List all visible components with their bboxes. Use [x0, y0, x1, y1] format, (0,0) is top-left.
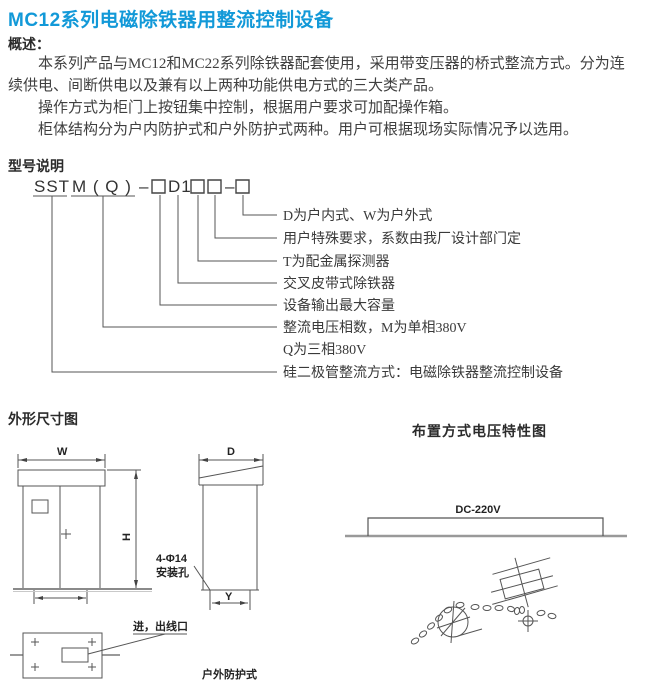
- model-code-box: [191, 180, 204, 193]
- material-pieces: [410, 602, 556, 645]
- model-label: T为配金属探测器: [283, 254, 390, 270]
- model-label: 设备输出最大容量: [283, 297, 395, 314]
- voltage-figure-heading: 布置方式电压特性图: [412, 421, 547, 441]
- model-code-box: [152, 180, 165, 193]
- model-code-diagram: SST M ( Q ) – D1 – D为户内式、W为户外式 用户特殊要求，系数…: [0, 174, 646, 386]
- model-heading: 型号说明: [8, 156, 64, 176]
- model-code-phase: M ( Q ): [72, 177, 132, 196]
- plan-view-drawing: 进，出线口 户外防护式: [10, 619, 257, 681]
- overview-paragraph: 柜体结构分为户内防护式和户外防护式两种。用户可根据现场实际情况予以选用。: [8, 119, 636, 141]
- voltage-pulse: [368, 518, 603, 536]
- dimension-arrows: [200, 458, 262, 605]
- front-view-drawing: W H: [13, 446, 152, 604]
- voltage-figure: DC-220V: [330, 495, 646, 691]
- model-label: 交叉皮带式除铁器: [283, 275, 395, 292]
- model-code-d1: D1: [168, 177, 192, 196]
- model-label: Q为三相380V: [283, 342, 366, 358]
- ports-label: 进，出线口: [133, 619, 188, 633]
- model-code-box: [208, 180, 221, 193]
- model-label: 用户特殊要求，系数由我厂设计部门定: [283, 230, 521, 247]
- height-dim-label: H: [121, 533, 133, 541]
- model-label: D为户内式、W为户外式: [283, 207, 432, 224]
- model-code-prefix: SST: [34, 177, 70, 196]
- catalog-page: MC12系列电磁除铁器用整流控制设备 概述： 本系列产品与MC12和MC22系列…: [0, 0, 646, 691]
- foot-dim-label: Y: [225, 591, 233, 603]
- overview-paragraph: 本系列产品与MC12和MC22系列除铁器配套使用，采用带变压器的桥式整流方式。分…: [8, 53, 636, 97]
- depth-dim-label: D: [227, 446, 235, 458]
- model-label: 整流电压相数，M为单相380V: [283, 320, 467, 336]
- model-labels: D为户内式、W为户外式 用户特殊要求，系数由我厂设计部门定 T为配金属探测器 交…: [283, 207, 563, 381]
- overview-text: 本系列产品与MC12和MC22系列除铁器配套使用，采用带变压器的桥式整流方式。分…: [0, 53, 646, 141]
- overview-heading: 概述：: [8, 34, 50, 54]
- mounting-hole-label-line1: 4-Φ14: [156, 553, 188, 565]
- model-code-dash: –: [139, 177, 149, 196]
- model-leader-lines: [33, 195, 277, 372]
- dimension-drawing: W H: [0, 440, 330, 691]
- magnet-box: [482, 549, 561, 616]
- side-view-drawing: D Y 4-Φ14 安装孔: [156, 446, 263, 610]
- layout-sketch: [410, 549, 561, 645]
- mounting-hole-label-line2: 安装孔: [156, 565, 189, 579]
- model-code-dash: –: [225, 177, 235, 196]
- width-dim-label: W: [57, 446, 68, 458]
- dc-voltage-label: DC-220V: [455, 504, 501, 516]
- model-label: 硅二极管整流方式：电磁除铁器整流控制设备: [283, 364, 563, 381]
- overview-paragraph: 操作方式为柜门上按钮集中控制，根据用户要求可加配操作箱。: [8, 97, 636, 119]
- dimension-arrows: [19, 458, 138, 600]
- outdoor-type-label: 户外防护式: [202, 667, 257, 681]
- model-code: SST M ( Q ) – D1 –: [34, 177, 249, 196]
- page-title: MC12系列电磁除铁器用整流控制设备: [8, 5, 334, 32]
- model-code-box: [236, 180, 249, 193]
- dimension-figure-heading: 外形尺寸图: [8, 409, 78, 429]
